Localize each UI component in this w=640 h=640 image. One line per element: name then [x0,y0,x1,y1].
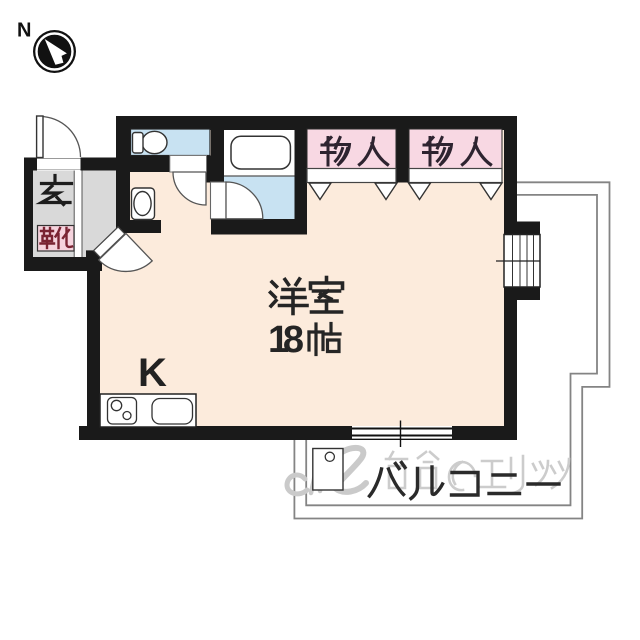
svg-text:18: 18 [268,319,304,361]
svg-text:K: K [138,351,167,395]
svg-text:N: N [17,20,31,42]
